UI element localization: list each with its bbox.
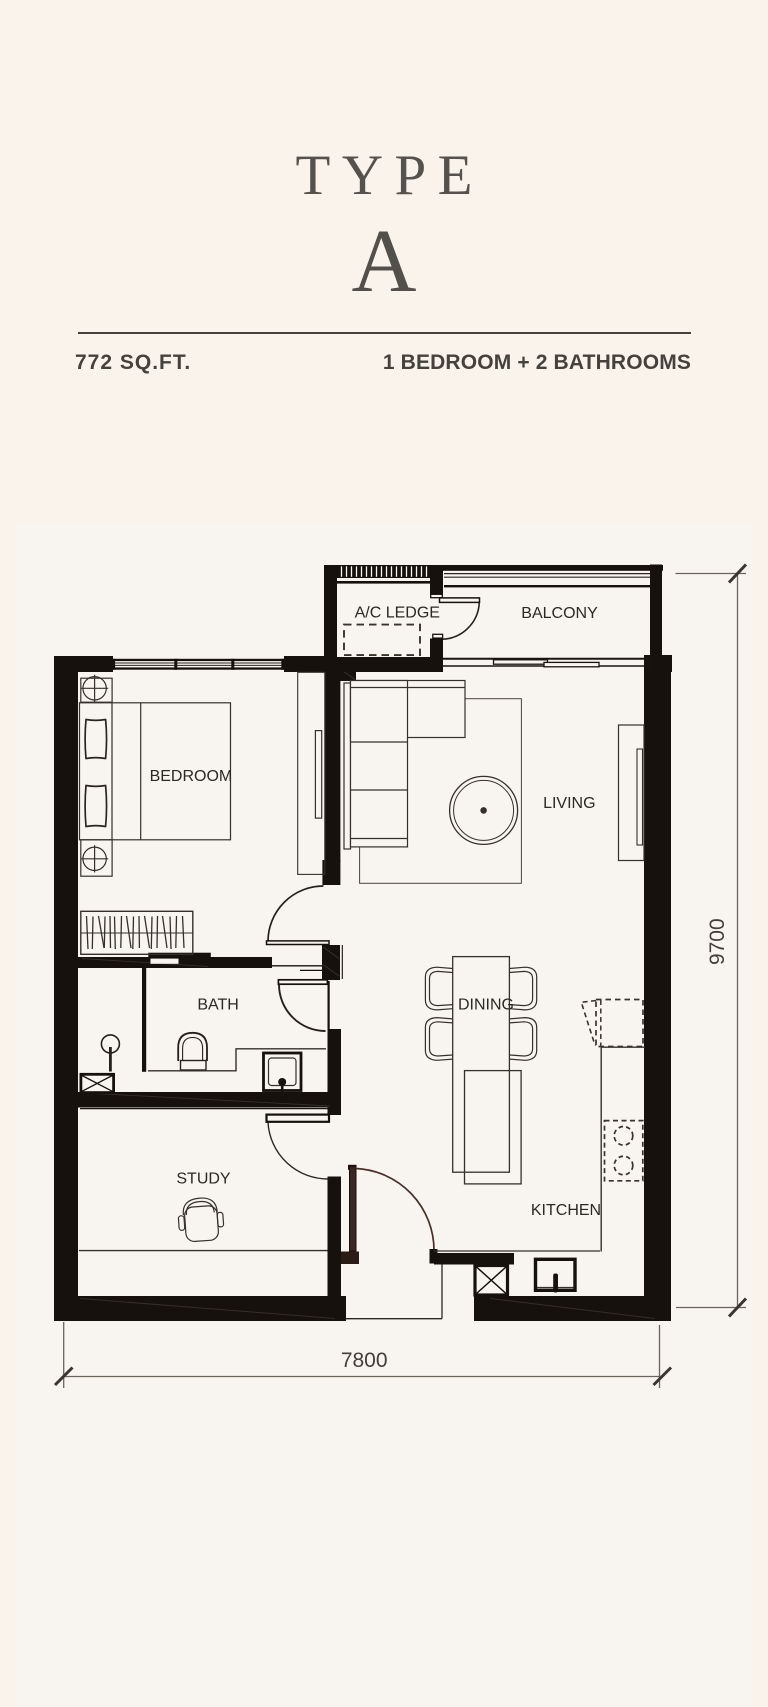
svg-text:7800: 7800	[341, 1349, 388, 1372]
svg-text:A/C LEDGE: A/C LEDGE	[355, 604, 440, 621]
svg-text:BALCONY: BALCONY	[521, 605, 598, 622]
svg-text:BATH: BATH	[197, 997, 238, 1014]
svg-text:DINING: DINING	[458, 997, 514, 1014]
svg-text:9700: 9700	[706, 918, 729, 965]
svg-text:BEDROOM: BEDROOM	[150, 768, 233, 785]
svg-text:STUDY: STUDY	[176, 1171, 231, 1188]
svg-text:LIVING: LIVING	[543, 795, 595, 812]
svg-text:KITCHEN: KITCHEN	[531, 1202, 601, 1219]
